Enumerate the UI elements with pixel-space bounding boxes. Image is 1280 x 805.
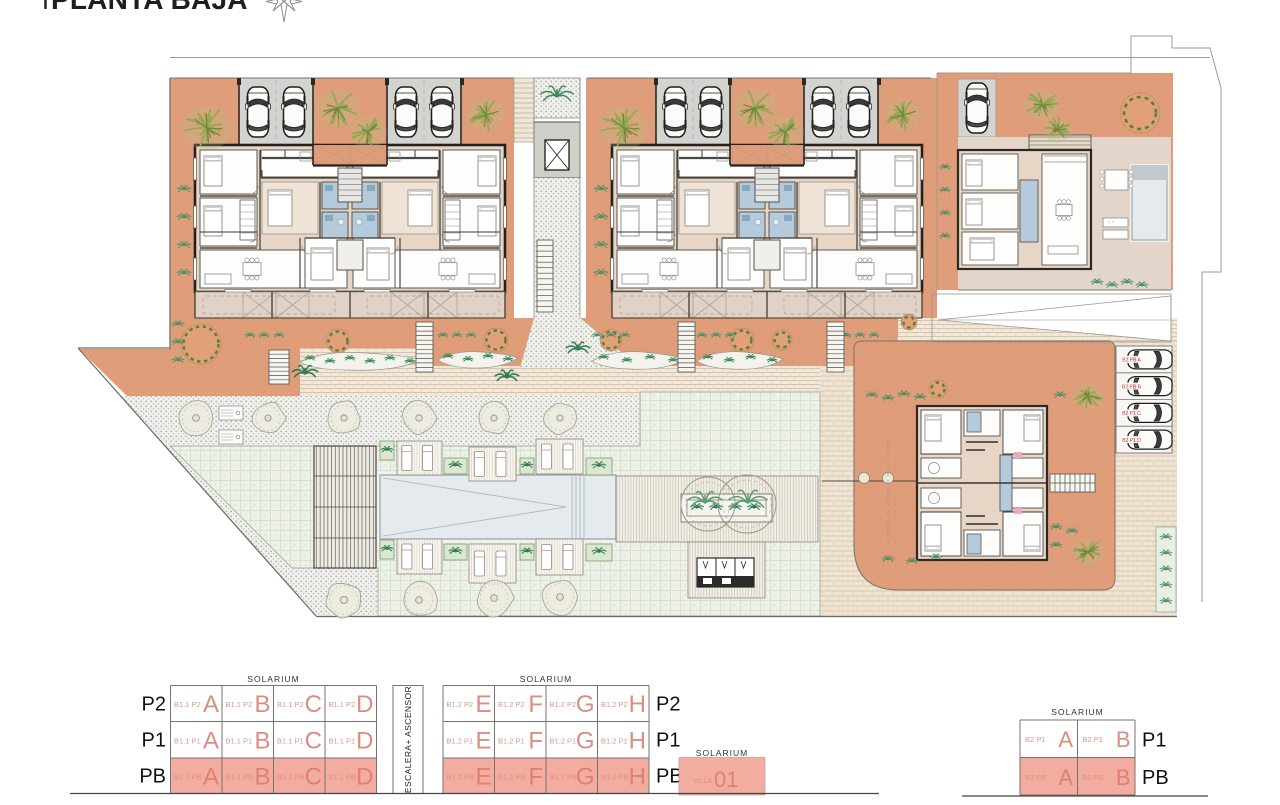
- svg-text:B2 PB A: B2 PB A: [1122, 358, 1141, 364]
- svg-text:B2 P1 C: B2 P1 C: [1122, 411, 1141, 417]
- svg-text:G: G: [576, 727, 595, 754]
- svg-text:B1.1 P1: B1.1 P1: [277, 736, 304, 745]
- svg-text:C: C: [305, 763, 322, 790]
- svg-text:B1.2 PB: B1.2 PB: [601, 772, 629, 781]
- svg-text:B: B: [1116, 765, 1131, 790]
- svg-text:B2 PB B: B2 PB B: [1122, 384, 1142, 390]
- svg-text:B1.2 P2: B1.2 P2: [447, 700, 474, 709]
- svg-text:ESCALERA+ ASCENSOR: ESCALERA+ ASCENSOR: [403, 686, 413, 793]
- svg-text:B1.1 P1: B1.1 P1: [329, 736, 356, 745]
- svg-text:C: C: [305, 727, 322, 754]
- svg-text:P1: P1: [142, 730, 166, 752]
- svg-text:B2 PB: B2 PB: [1083, 773, 1104, 782]
- svg-text:C: C: [305, 691, 322, 718]
- svg-text:PB: PB: [1142, 767, 1169, 789]
- svg-text:SOLARIUM: SOLARIUM: [696, 748, 748, 758]
- svg-text:A: A: [203, 727, 219, 754]
- svg-text:SOLARIUM: SOLARIUM: [520, 674, 572, 684]
- svg-text:E: E: [475, 763, 491, 790]
- svg-text:D: D: [356, 763, 373, 790]
- svg-text:B1.2 P2: B1.2 P2: [498, 700, 525, 709]
- svg-text:G: G: [576, 763, 595, 790]
- svg-text:B2 P1 D: B2 P1 D: [1122, 438, 1141, 444]
- svg-text:F: F: [528, 691, 543, 718]
- svg-text:B1.1 PB: B1.1 PB: [277, 772, 305, 781]
- svg-text:VILLA: VILLA: [693, 778, 712, 785]
- svg-text:G: G: [576, 691, 595, 718]
- svg-text:B1.2 P1: B1.2 P1: [601, 736, 628, 745]
- svg-text:SOLARIUM: SOLARIUM: [1051, 707, 1103, 717]
- svg-text:B1.1 P2: B1.1 P2: [174, 700, 201, 709]
- svg-text:01: 01: [714, 767, 738, 792]
- svg-text:PB: PB: [139, 766, 166, 788]
- svg-text:B1.2 PB: B1.2 PB: [447, 772, 475, 781]
- svg-text:P2: P2: [142, 694, 166, 716]
- svg-text:H: H: [629, 763, 646, 790]
- svg-text:E: E: [475, 691, 491, 718]
- svg-text:A: A: [203, 763, 219, 790]
- svg-text:D: D: [356, 727, 373, 754]
- svg-text:B1.1 PB: B1.1 PB: [329, 772, 357, 781]
- svg-text:PLANTA BAJA: PLANTA BAJA: [51, 0, 248, 15]
- svg-text:P2: P2: [656, 694, 680, 716]
- svg-text:P1: P1: [656, 730, 680, 752]
- svg-text:A: A: [1058, 765, 1073, 790]
- svg-text:B1.1 P1: B1.1 P1: [226, 736, 253, 745]
- svg-text:B2 P1: B2 P1: [1025, 735, 1045, 744]
- svg-text:D: D: [356, 691, 373, 718]
- svg-text:H: H: [629, 691, 646, 718]
- svg-text:B1.2 P2: B1.2 P2: [601, 700, 628, 709]
- svg-text:B1.2 PB: B1.2 PB: [550, 772, 578, 781]
- svg-text:B1.1 PB: B1.1 PB: [174, 772, 202, 781]
- svg-text:P1: P1: [1142, 730, 1166, 752]
- svg-text:B1.1 PB: B1.1 PB: [226, 772, 254, 781]
- svg-text:A: A: [1058, 727, 1073, 752]
- svg-text:B1.2 P2: B1.2 P2: [550, 700, 577, 709]
- svg-text:B1.2 P1: B1.2 P1: [447, 736, 474, 745]
- svg-text:E: E: [475, 727, 491, 754]
- svg-text:A: A: [203, 691, 219, 718]
- svg-text:B1.2 P1: B1.2 P1: [550, 736, 577, 745]
- svg-text:B1.1 P2: B1.1 P2: [226, 700, 253, 709]
- svg-text:B1.1 P2: B1.1 P2: [329, 700, 356, 709]
- svg-text:B2 P1: B2 P1: [1083, 735, 1103, 744]
- svg-text:B1.2 PB: B1.2 PB: [498, 772, 526, 781]
- svg-text:B1.1 P1: B1.1 P1: [174, 736, 201, 745]
- svg-text:B: B: [1116, 727, 1131, 752]
- svg-text:H: H: [629, 727, 646, 754]
- svg-text:B: B: [254, 727, 270, 754]
- svg-text:SOLARIUM: SOLARIUM: [247, 674, 299, 684]
- svg-text:B2 PB: B2 PB: [1025, 773, 1046, 782]
- svg-text:B1.1 P2: B1.1 P2: [277, 700, 304, 709]
- svg-text:B1.2 P1: B1.2 P1: [498, 736, 525, 745]
- svg-text:F: F: [528, 727, 543, 754]
- svg-text:B: B: [254, 763, 270, 790]
- svg-text:F: F: [528, 763, 543, 790]
- svg-text:B: B: [254, 691, 270, 718]
